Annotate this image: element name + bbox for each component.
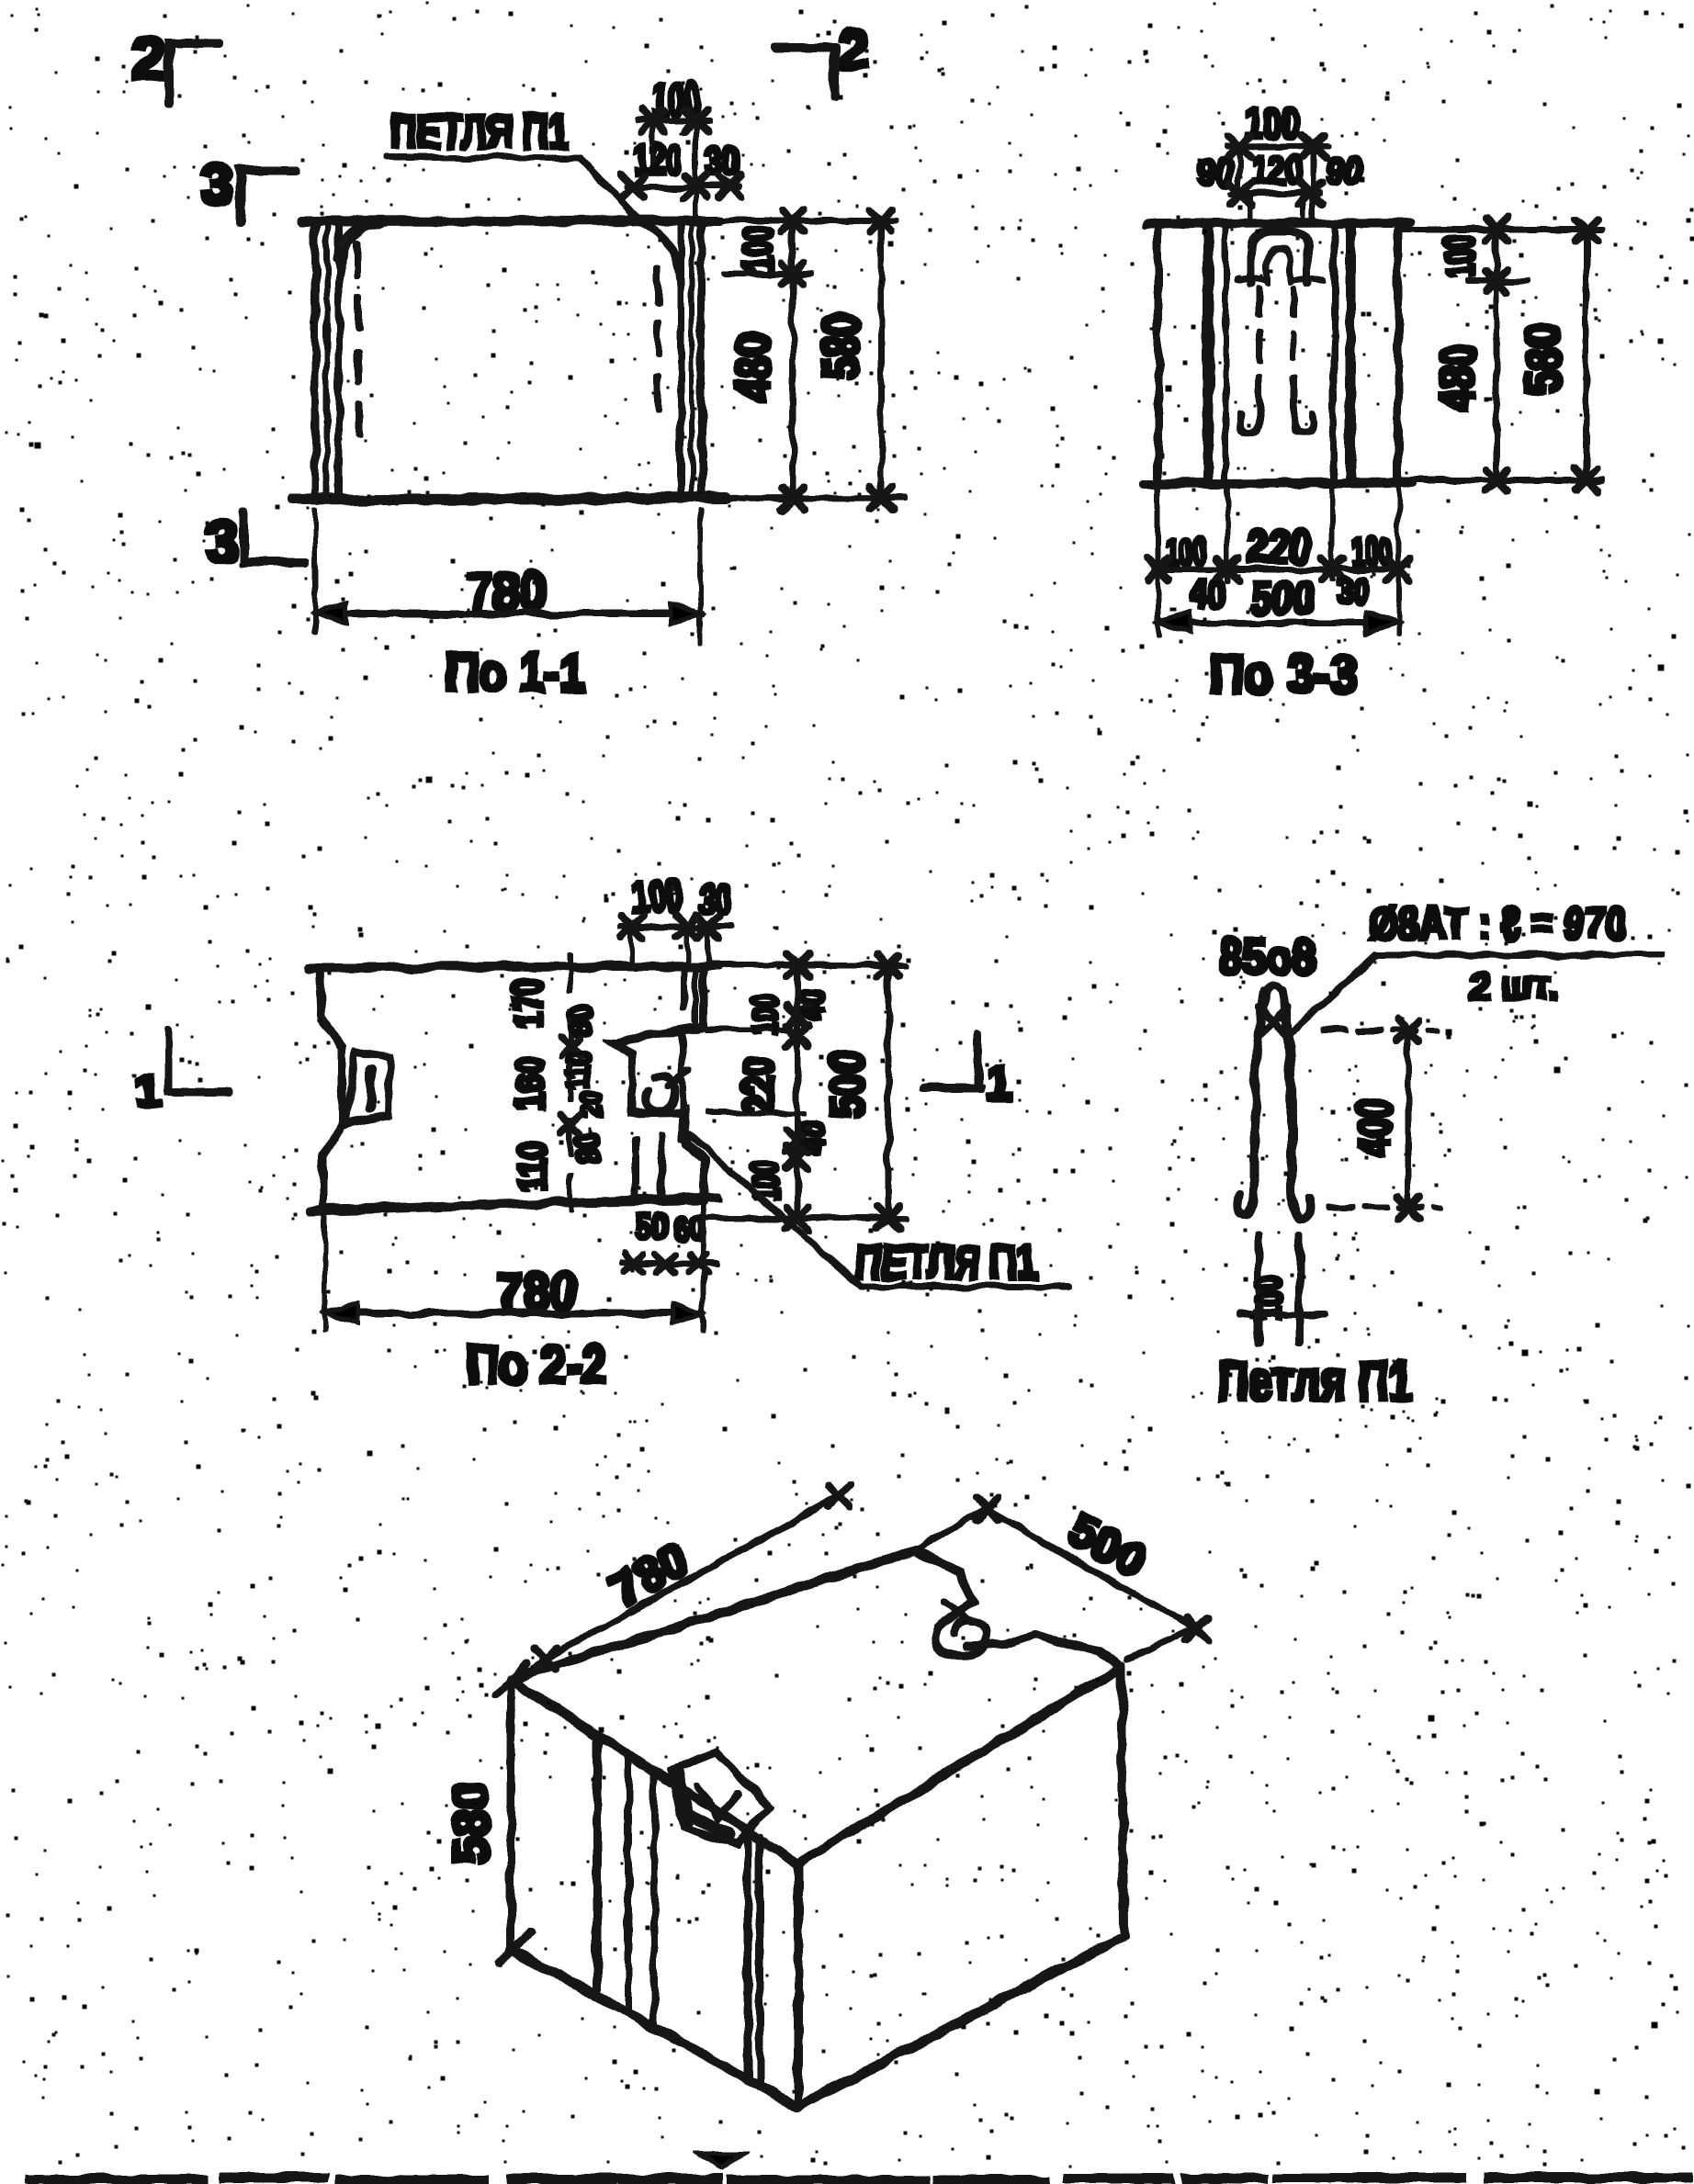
svg-text:40: 40 [794,1120,832,1154]
svg-text:Петля П1: Петля П1 [1218,1350,1414,1412]
svg-text:1: 1 [135,1065,161,1117]
svg-text:480: 480 [726,333,781,401]
svg-text:100: 100 [1244,99,1301,147]
svg-text:20: 20 [574,1092,609,1118]
svg-text:ПЕТЛЯ П1: ПЕТЛЯ П1 [855,1236,1037,1289]
svg-text:3: 3 [200,151,233,217]
svg-text:110: 110 [561,1052,596,1090]
svg-text:100: 100 [734,226,782,272]
svg-text:400: 400 [1349,1098,1400,1157]
svg-text:160: 160 [508,1057,553,1110]
svg-text:Ø8АТ : ℓ = 970: Ø8АТ : ℓ = 970 [1368,900,1627,949]
svg-text:40: 40 [794,988,832,1021]
svg-text:80: 80 [569,1133,606,1165]
svg-text:780: 780 [496,1262,577,1322]
svg-text:50: 50 [635,1207,668,1247]
svg-text:80: 80 [562,1006,600,1037]
svg-text:580: 580 [814,313,869,379]
svg-text:100: 100 [746,1161,786,1201]
svg-text:2: 2 [837,18,867,80]
svg-text:90: 90 [1326,149,1362,192]
svg-text:500: 500 [1250,572,1315,624]
svg-text:100: 100 [1351,530,1392,573]
svg-text:170: 170 [506,978,551,1028]
svg-text:По 3-3: По 3-3 [1209,645,1358,704]
svg-text:100: 100 [745,995,785,1035]
svg-text:30: 30 [699,877,732,922]
svg-text:100: 100 [1438,235,1483,277]
svg-text:220: 220 [734,1057,782,1114]
svg-text:85о8: 85о8 [1219,929,1316,985]
svg-text:580: 580 [444,1782,499,1864]
svg-text:580: 580 [1517,324,1570,394]
svg-text:780: 780 [466,562,547,622]
svg-text:30: 30 [1337,571,1370,612]
svg-text:500: 500 [821,1051,875,1119]
svg-text:ПЕТЛЯ П1: ПЕТЛЯ П1 [390,106,569,159]
svg-text:100: 100 [1166,530,1206,573]
svg-text:По 2-2: По 2-2 [467,1335,606,1395]
svg-text:40: 40 [1190,572,1226,615]
svg-text:90: 90 [1197,151,1234,194]
svg-text:60: 60 [673,1209,706,1249]
svg-text:3: 3 [206,509,239,575]
svg-text:120: 120 [1251,148,1303,193]
svg-text:1: 1 [986,1057,1011,1109]
svg-text:220: 220 [1247,521,1311,572]
svg-text:110: 110 [510,1142,555,1191]
svg-text:480: 480 [1431,344,1485,411]
svg-text:По 1-1: По 1-1 [446,643,585,703]
